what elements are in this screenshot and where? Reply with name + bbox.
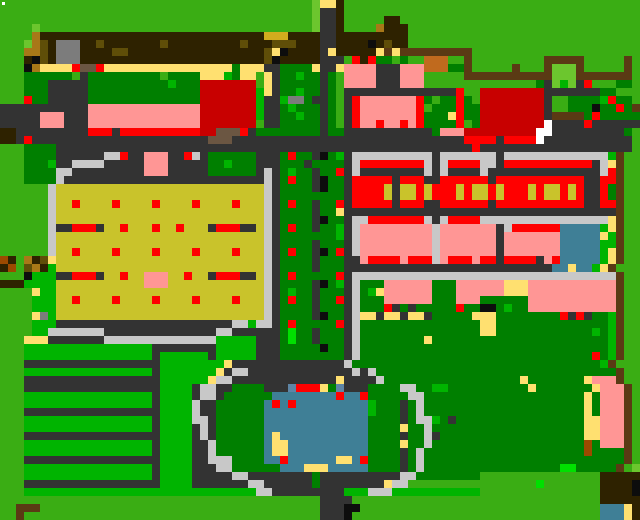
boulevard-median[interactable]: [280, 152, 344, 360]
east-fence[interactable]: [616, 152, 624, 452]
festival-gate[interactable]: [544, 56, 592, 88]
pixel-town-map: [0, 0, 640, 520]
pool-house[interactable]: [560, 224, 600, 272]
south-brown-lodge[interactable]: [600, 472, 640, 500]
west-shop-walk[interactable]: [40, 64, 256, 80]
white-cursor-dot-area[interactable]: [0, 0, 8, 8]
plaza-shop[interactable]: [344, 56, 432, 130]
south-garden[interactable]: [432, 390, 592, 480]
rowhouses-north[interactable]: [352, 152, 616, 208]
pond-plaza-ring[interactable]: [192, 360, 440, 504]
yellow-hall[interactable]: [48, 152, 296, 348]
orchard-field[interactable]: [24, 344, 160, 496]
dark-red-hall[interactable]: [480, 88, 544, 130]
red-hall[interactable]: [200, 80, 256, 142]
south-pool[interactable]: [600, 503, 632, 520]
